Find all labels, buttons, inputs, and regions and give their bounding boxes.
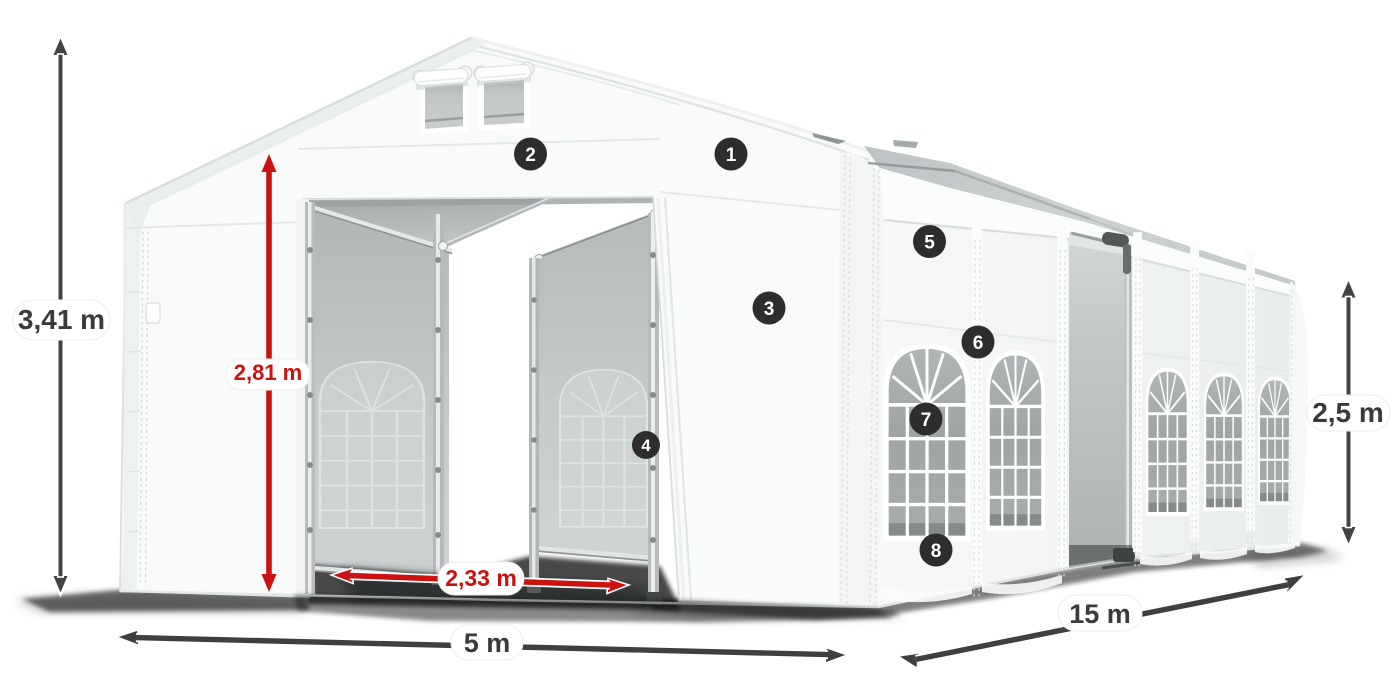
svg-text:7: 7 <box>921 410 932 431</box>
svg-text:2,5 m: 2,5 m <box>1312 397 1384 428</box>
svg-text:1: 1 <box>726 145 737 166</box>
svg-text:2,81 m: 2,81 m <box>234 360 303 385</box>
svg-text:6: 6 <box>973 333 984 354</box>
svg-text:5: 5 <box>924 232 935 253</box>
svg-text:8: 8 <box>931 541 942 562</box>
svg-text:3: 3 <box>764 299 775 320</box>
svg-text:4: 4 <box>641 436 651 455</box>
svg-text:5 m: 5 m <box>464 628 511 658</box>
svg-text:3,41 m: 3,41 m <box>18 304 105 335</box>
svg-text:2: 2 <box>525 145 536 166</box>
svg-text:2,33 m: 2,33 m <box>445 565 517 591</box>
svg-text:15 m: 15 m <box>1069 599 1131 629</box>
